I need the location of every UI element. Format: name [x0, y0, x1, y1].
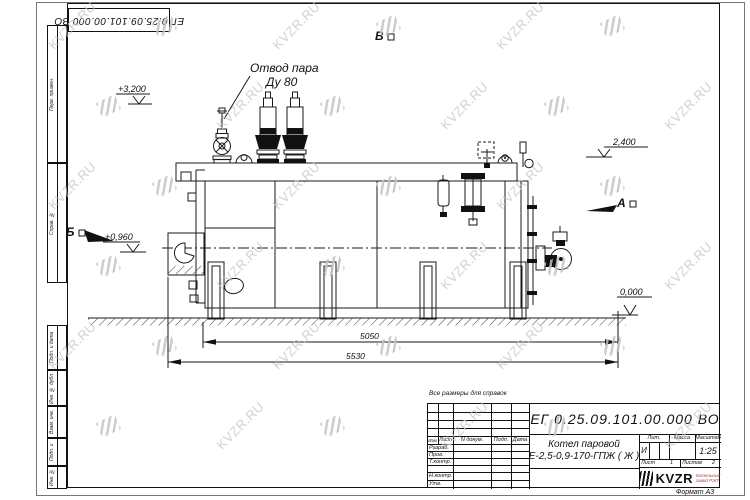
view-marker-b: Б — [66, 225, 75, 239]
tb-col-data: Дата — [511, 436, 529, 444]
tb-row-utv: Утв. — [429, 480, 453, 488]
dashed-position-outline — [478, 142, 494, 158]
tb-row-nkontr: Н.контр. — [429, 472, 453, 480]
kvzr-logo-icon — [640, 471, 653, 486]
tb-row-razrab: Разраб. — [429, 444, 453, 451]
tb-product-name-line2: Е-2,5-0,9-170-ГПЖ ( Ж ) — [529, 451, 639, 463]
tb-scale-label: Масштаб — [695, 434, 721, 442]
tb-col-izm: Изм. — [428, 436, 438, 444]
tb-lit-value: И — [639, 442, 649, 459]
feed-pump — [536, 226, 572, 270]
manhole — [223, 277, 245, 296]
kvzr-company-name: Котельный завод РЭП — [696, 473, 720, 483]
tb-line — [428, 412, 529, 413]
tb-sheets-value: 2 — [708, 459, 719, 467]
drawing-sheet: Перв. примен. Справ. № Подп. и дата Инв.… — [0, 0, 750, 500]
tb-line — [428, 428, 529, 429]
tb-sheets-label: Листов — [682, 459, 706, 467]
safety-valve-1 — [255, 92, 281, 163]
view-markers: В А Б — [66, 29, 636, 242]
tb-col-podp: Подп. — [491, 436, 511, 444]
tb-line — [428, 420, 529, 421]
tb-line — [511, 404, 512, 489]
title-block: Изм. Лист N докум. Подп. Дата Разраб. Пр… — [427, 403, 720, 488]
tb-designation: ЕГ 0.25.09.101.00.000 ВО — [529, 404, 721, 434]
tb-sheet-value: 1 — [665, 459, 678, 467]
dim-5530: 5530 — [346, 351, 365, 361]
dim-5050: 5050 — [360, 331, 379, 341]
elev-2400: 2,400 — [612, 137, 636, 147]
tb-line — [680, 459, 681, 467]
tb-scale-value: 1:25 — [695, 442, 721, 459]
steam-outlet-text-2: Ду 80 — [264, 75, 298, 89]
steam-outlet-valve — [213, 108, 231, 163]
elev-0000: 0,000 — [620, 287, 643, 297]
boiler-body — [176, 163, 528, 308]
dome-fitting-2 — [498, 155, 512, 163]
safety-valve-2 — [282, 92, 308, 163]
reference-note: Все размеры для справок — [429, 390, 507, 397]
support-legs — [208, 262, 526, 319]
view-marker-a: А — [616, 196, 626, 210]
tb-col-dokum: N докум. — [453, 436, 491, 444]
tb-mass-label: Масса — [669, 434, 695, 442]
tb-line — [428, 465, 529, 466]
burner — [168, 233, 204, 275]
tb-product-name-line1: Котел паровой — [548, 439, 620, 451]
tb-col-list: Лист — [438, 436, 453, 444]
elev-3200: +3,200 — [118, 84, 146, 94]
tb-sheet-label: Лист — [641, 459, 663, 467]
steam-outlet-text-1: Отвод пара — [250, 61, 319, 75]
water-level-column — [461, 173, 485, 225]
tb-line — [659, 442, 660, 459]
tb-company-logo: KVZR Котельный завод РЭП — [639, 467, 721, 489]
tb-product-name: Котел паровой Е-2,5-0,9-170-ГПЖ ( Ж ) — [529, 434, 639, 468]
standpipe-siphon — [520, 142, 533, 168]
tb-lit-label: Лит. — [639, 434, 669, 442]
format-label: Формат А3 — [655, 489, 735, 496]
kvzr-logo-text: KVZR — [656, 471, 693, 486]
tb-line — [491, 404, 492, 489]
tb-line — [529, 468, 639, 469]
dome-fitting-1 — [236, 155, 252, 164]
tb-line — [453, 404, 454, 489]
view-marker-v: В — [375, 29, 384, 43]
tee-valve — [481, 149, 493, 168]
tb-row-tkontr: Т.контр. — [429, 458, 453, 465]
kvzr-company-name-line2: завод РЭП — [696, 478, 720, 483]
tb-line — [649, 442, 650, 459]
tb-row-prov: Пров. — [429, 451, 453, 458]
ground-line — [88, 318, 626, 326]
